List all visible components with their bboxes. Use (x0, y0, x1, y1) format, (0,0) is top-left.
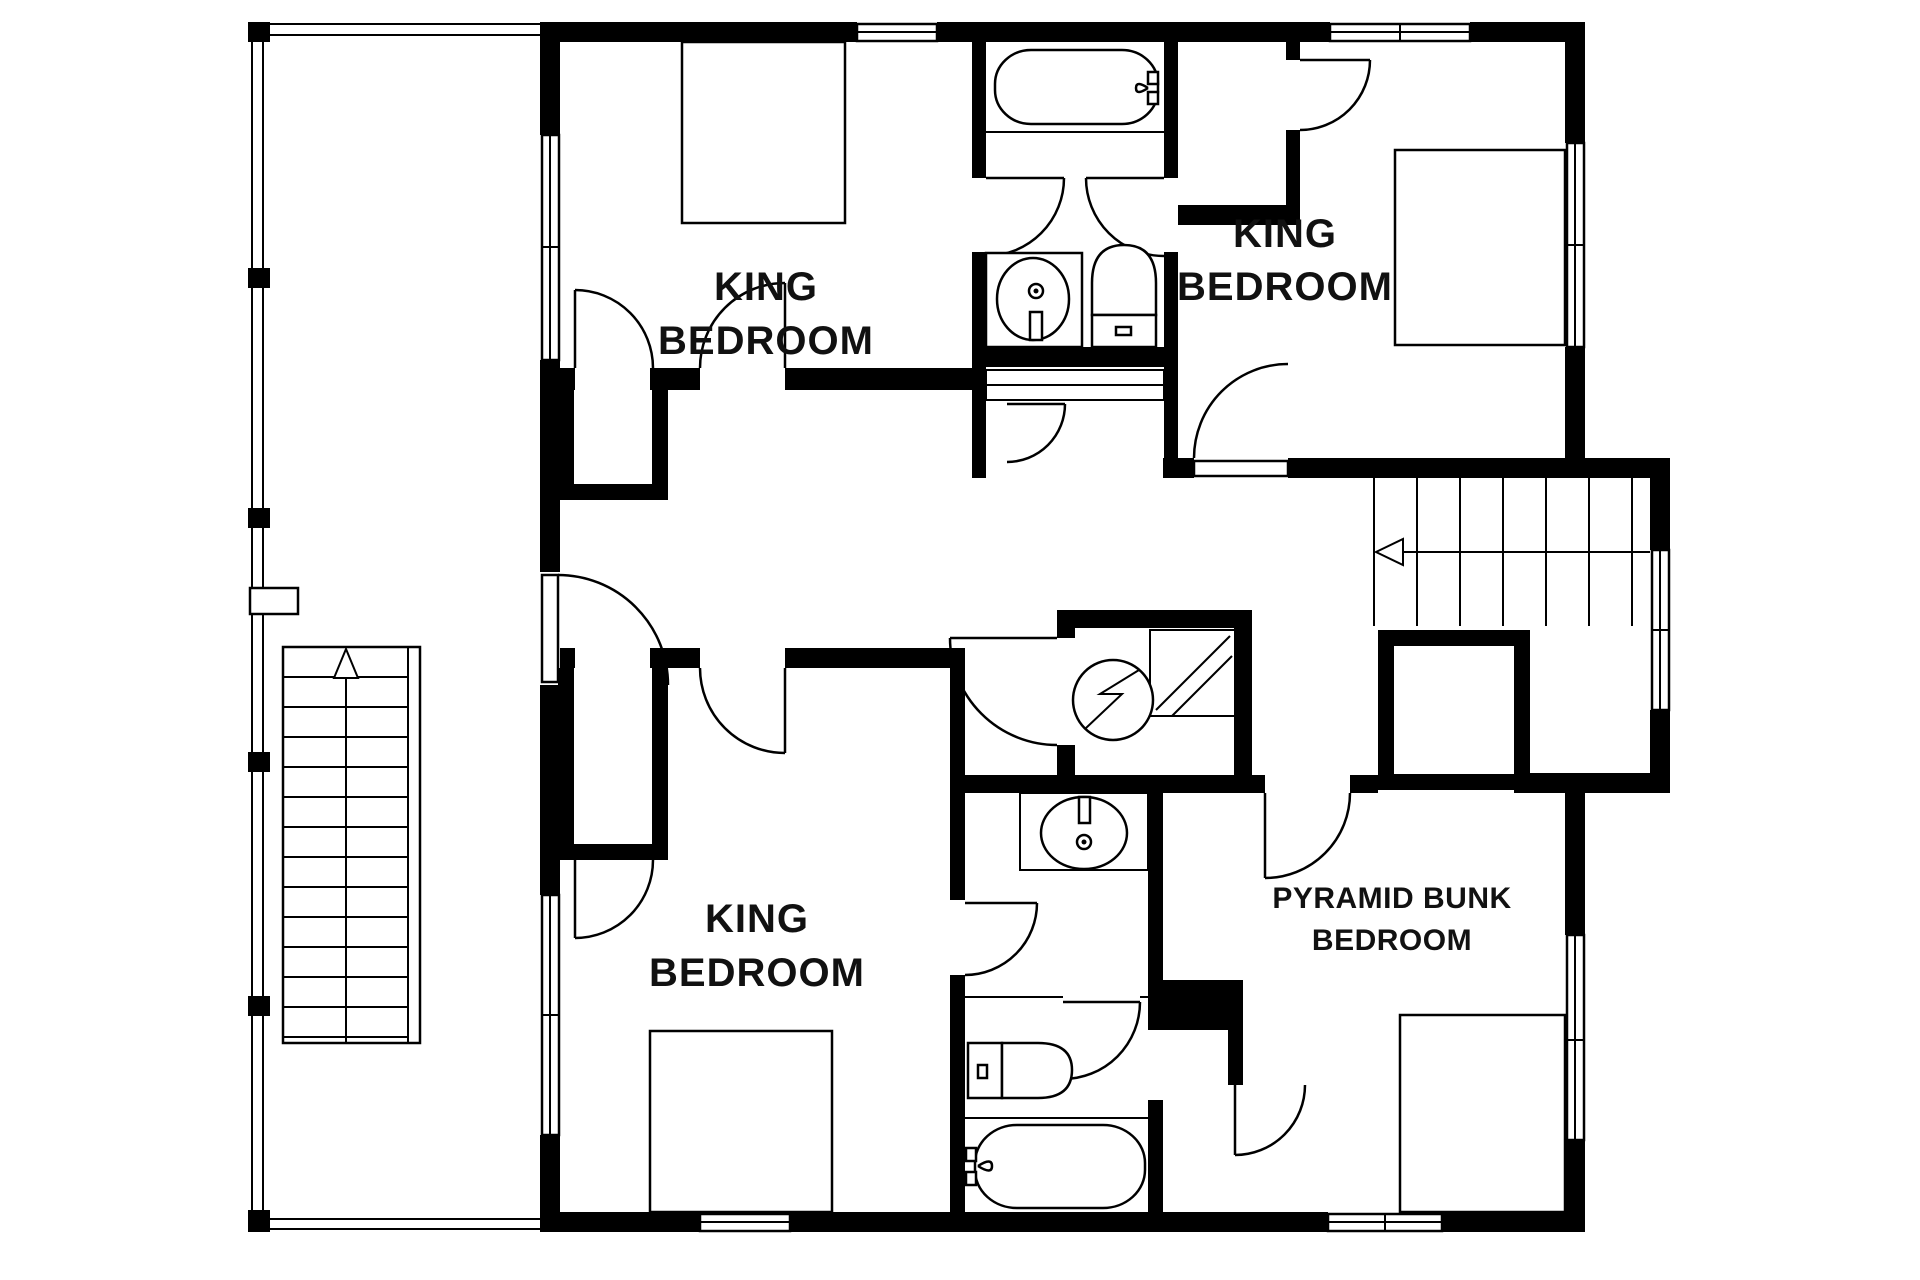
door (986, 178, 1064, 256)
deck-post (248, 508, 270, 528)
door (575, 290, 653, 368)
door (950, 638, 1057, 745)
gate-icon (250, 588, 298, 614)
floor-plan: KING BEDROOM KING BEDROOM KING BEDROOM P… (0, 0, 1920, 1280)
bed-icon (650, 1031, 832, 1212)
king-bedroom-top-right-label-line1: KING (1233, 212, 1337, 256)
bathroom-bottom (965, 793, 1148, 1208)
deck (248, 22, 545, 1232)
door (1300, 60, 1370, 130)
bathroom-top (986, 50, 1164, 462)
door (1235, 1085, 1305, 1155)
door (700, 668, 785, 753)
bed-icon (1400, 1015, 1565, 1212)
king-bedroom-top-right-label-line2: BEDROOM (1177, 265, 1393, 309)
pyramid-bunk-bedroom-label-line1: PYRAMID BUNK (1272, 882, 1511, 915)
bed-icon (1395, 150, 1565, 345)
left-arrow-icon (1376, 539, 1403, 565)
door (1265, 793, 1350, 878)
interior-walls (558, 42, 1530, 1212)
window (1328, 1214, 1442, 1231)
king-bedroom-bottom-left-label-line1: KING (705, 897, 809, 941)
door (965, 903, 1037, 975)
door (1063, 1002, 1140, 1079)
deck-post (248, 268, 270, 288)
toilet-icon (968, 1043, 1072, 1098)
window (857, 24, 937, 41)
up-arrow-icon (334, 649, 358, 678)
king-bedroom-top-left-label-line2: BEDROOM (658, 319, 874, 363)
window (1330, 24, 1470, 41)
king-bedroom-top-left-label-line1: KING (714, 265, 818, 309)
deck-post (248, 1210, 270, 1232)
toilet-icon (1092, 245, 1156, 347)
stairs-icon (1374, 478, 1650, 626)
vanity-sink-icon (1020, 793, 1148, 870)
bathtub-icon (995, 50, 1158, 124)
bathtub-icon (966, 1125, 1145, 1208)
deck-post (248, 996, 270, 1016)
window (1567, 935, 1584, 1140)
window (1652, 550, 1669, 710)
pyramid-bunk-bedroom-label-line2: BEDROOM (1312, 924, 1472, 957)
floor-plan-drawing: KING BEDROOM KING BEDROOM KING BEDROOM P… (0, 0, 1920, 1280)
linen-closet-icon (986, 370, 1164, 462)
king-bedroom-bottom-left-label-line2: BEDROOM (649, 951, 865, 995)
deck-post (248, 22, 270, 42)
window (700, 1214, 790, 1231)
window (1567, 143, 1584, 347)
door (1194, 364, 1288, 476)
window (542, 135, 559, 360)
shower-icon (1073, 630, 1236, 740)
stairs-icon (283, 647, 420, 1043)
deck-post (248, 752, 270, 772)
bed-icon (682, 42, 845, 223)
window (542, 895, 559, 1135)
door (575, 860, 653, 938)
sink-icon (986, 253, 1082, 347)
